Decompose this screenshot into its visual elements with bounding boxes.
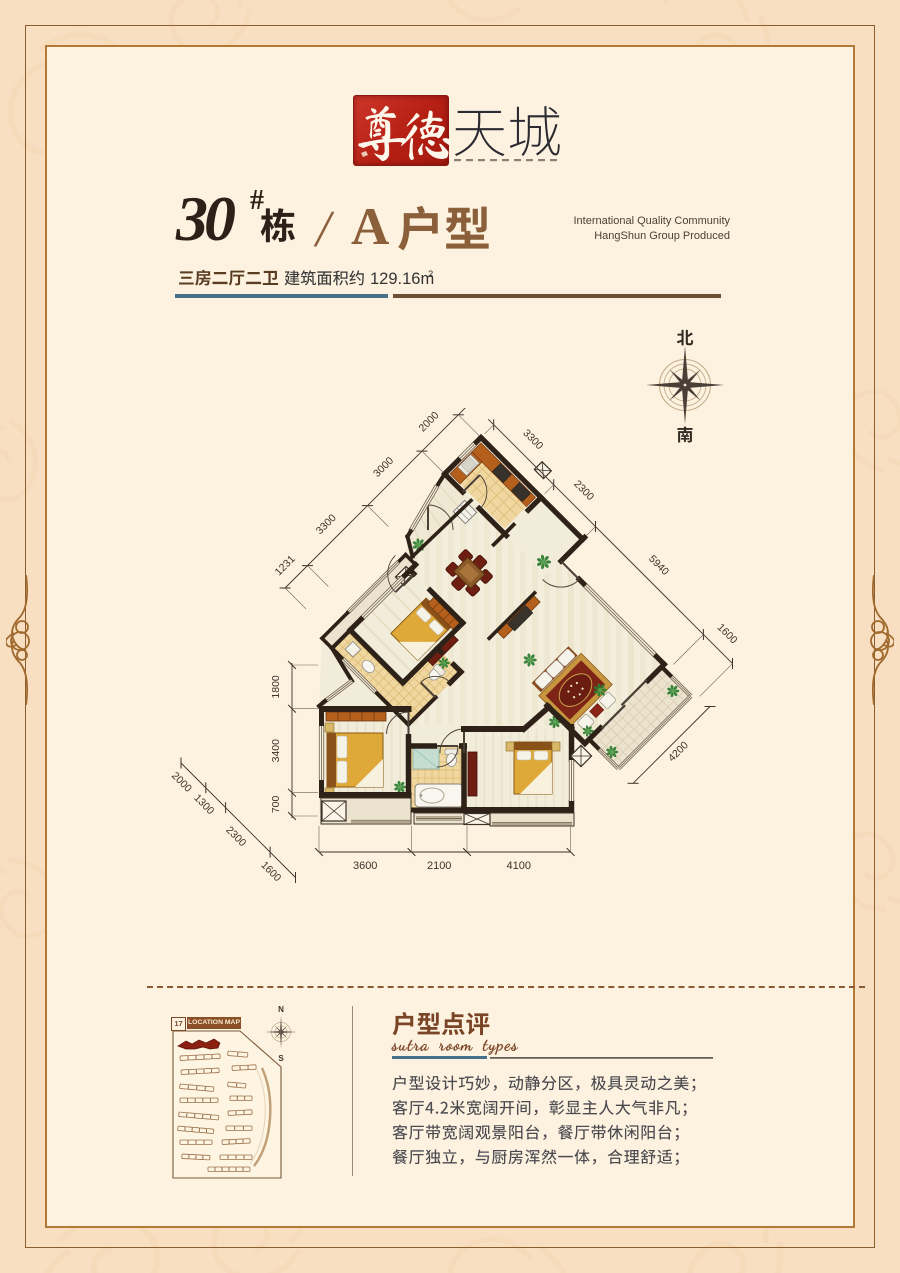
svg-text:2300: 2300 — [223, 824, 248, 849]
svg-text:2000: 2000 — [416, 409, 441, 434]
svg-text:3400: 3400 — [270, 739, 282, 763]
svg-text:2: 2 — [428, 269, 433, 280]
svg-text:N: N — [278, 1005, 284, 1014]
svg-text:1300: 1300 — [191, 792, 216, 817]
svg-text:1600: 1600 — [715, 621, 740, 646]
svg-text:129.16m: 129.16m — [370, 270, 434, 288]
svg-text:5940: 5940 — [646, 553, 671, 578]
svg-text:4200: 4200 — [666, 739, 691, 764]
svg-text:A: A — [351, 198, 389, 256]
svg-text:2100: 2100 — [427, 860, 451, 872]
svg-text:S: S — [278, 1054, 284, 1063]
svg-text:/: / — [313, 201, 335, 258]
svg-text:700: 700 — [270, 795, 282, 813]
svg-text:2300: 2300 — [571, 478, 596, 503]
svg-text:4100: 4100 — [507, 860, 531, 872]
svg-text:3600: 3600 — [353, 860, 377, 872]
svg-text:3300: 3300 — [314, 512, 339, 537]
svg-text:1231: 1231 — [273, 553, 298, 578]
svg-text:3300: 3300 — [520, 427, 545, 452]
svg-text:2000: 2000 — [169, 770, 194, 795]
svg-text:1600: 1600 — [258, 859, 283, 884]
svg-text:1800: 1800 — [270, 675, 282, 699]
svg-text:3000: 3000 — [371, 455, 396, 480]
